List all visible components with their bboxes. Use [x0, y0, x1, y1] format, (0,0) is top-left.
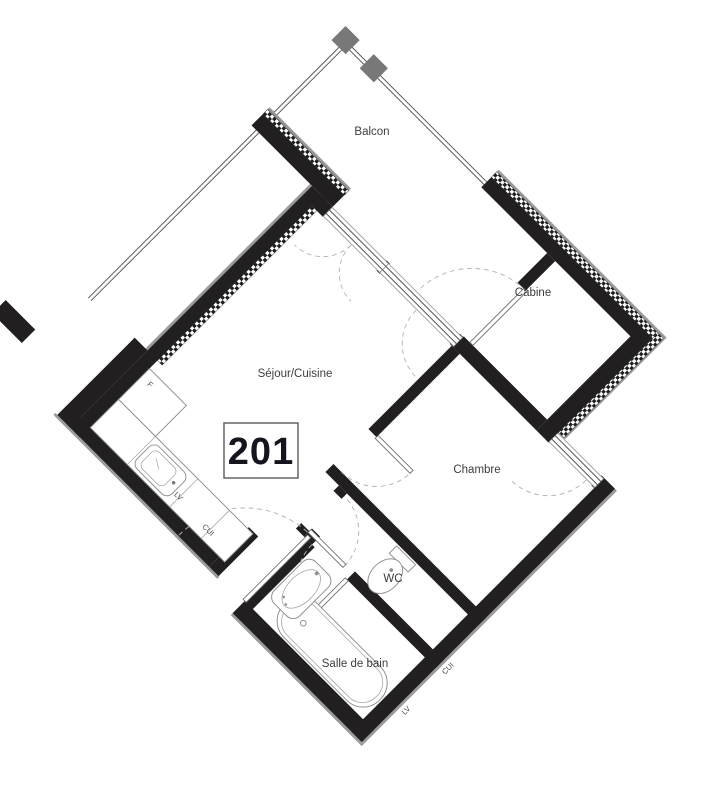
balcony-sliding-door	[323, 207, 388, 272]
cabine-chambre-wall	[453, 336, 547, 430]
floor-plan-drawing: F LV CUI LV CUI Balcon Cabine Séjour/Cui…	[0, 0, 709, 800]
room-label-chambre: Chambre	[453, 464, 500, 476]
sejour-chambre-wall	[368, 346, 459, 437]
rotated-plan-group: F LV CUI LV CUI	[0, 0, 709, 754]
cabine-door-arc	[418, 237, 525, 344]
cabine-southeast-wall	[536, 326, 652, 442]
room-label-sejour-cuisine: Séjour/Cuisine	[258, 368, 333, 380]
chambre-door-leaf	[375, 435, 413, 473]
chambre-south-wall	[325, 464, 486, 625]
room-label-wc: WC	[383, 573, 402, 585]
floor-plan-page: F LV CUI LV CUI Balcon Cabine Séjour/Cui…	[0, 0, 709, 800]
sejour-window	[380, 264, 463, 347]
room-label-balcon: Balcon	[354, 126, 389, 138]
unit-number: 201	[228, 431, 294, 473]
balcony-separation-wall	[252, 114, 345, 207]
cabine-northeast-wall	[481, 177, 652, 348]
neighbor-wall-stub	[0, 300, 35, 343]
west-exterior-wall	[70, 186, 322, 438]
unit-number-box: 201	[224, 423, 298, 478]
chambre-french-window	[549, 433, 603, 487]
room-label-cabine: Cabine	[515, 287, 551, 299]
balcony-posts	[331, 26, 387, 82]
cabine-northwest-wall	[518, 253, 556, 291]
room-label-salle-de-bain: Salle de bain	[322, 658, 389, 670]
